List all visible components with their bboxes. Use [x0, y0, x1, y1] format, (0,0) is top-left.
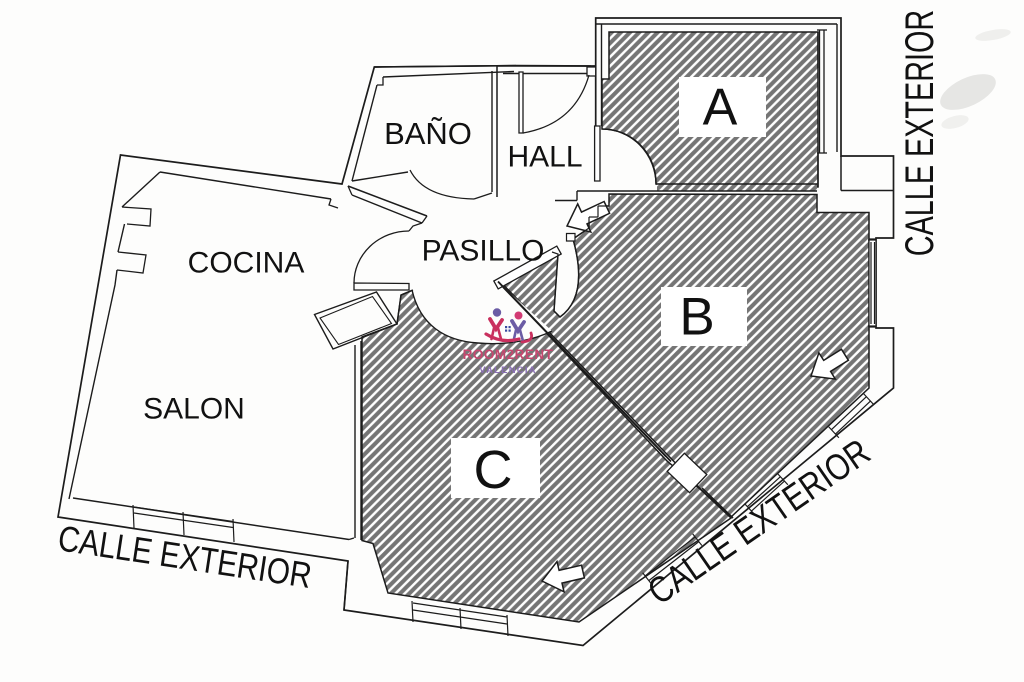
svg-text:B: B — [679, 288, 714, 347]
svg-text:C: C — [474, 440, 513, 500]
svg-text:ROOM2RENT: ROOM2RENT — [463, 347, 554, 362]
svg-text:A: A — [703, 79, 738, 137]
svg-text:HALL: HALL — [507, 141, 582, 174]
svg-text:SALON: SALON — [143, 393, 245, 426]
svg-text:VALENCIA: VALENCIA — [479, 365, 536, 376]
svg-text:CALLE EXTERIOR: CALLE EXTERIOR — [897, 10, 942, 256]
svg-text:BAÑO: BAÑO — [384, 116, 472, 151]
svg-text:COCINA: COCINA — [188, 247, 305, 280]
svg-text:PASILLO: PASILLO — [422, 235, 545, 268]
